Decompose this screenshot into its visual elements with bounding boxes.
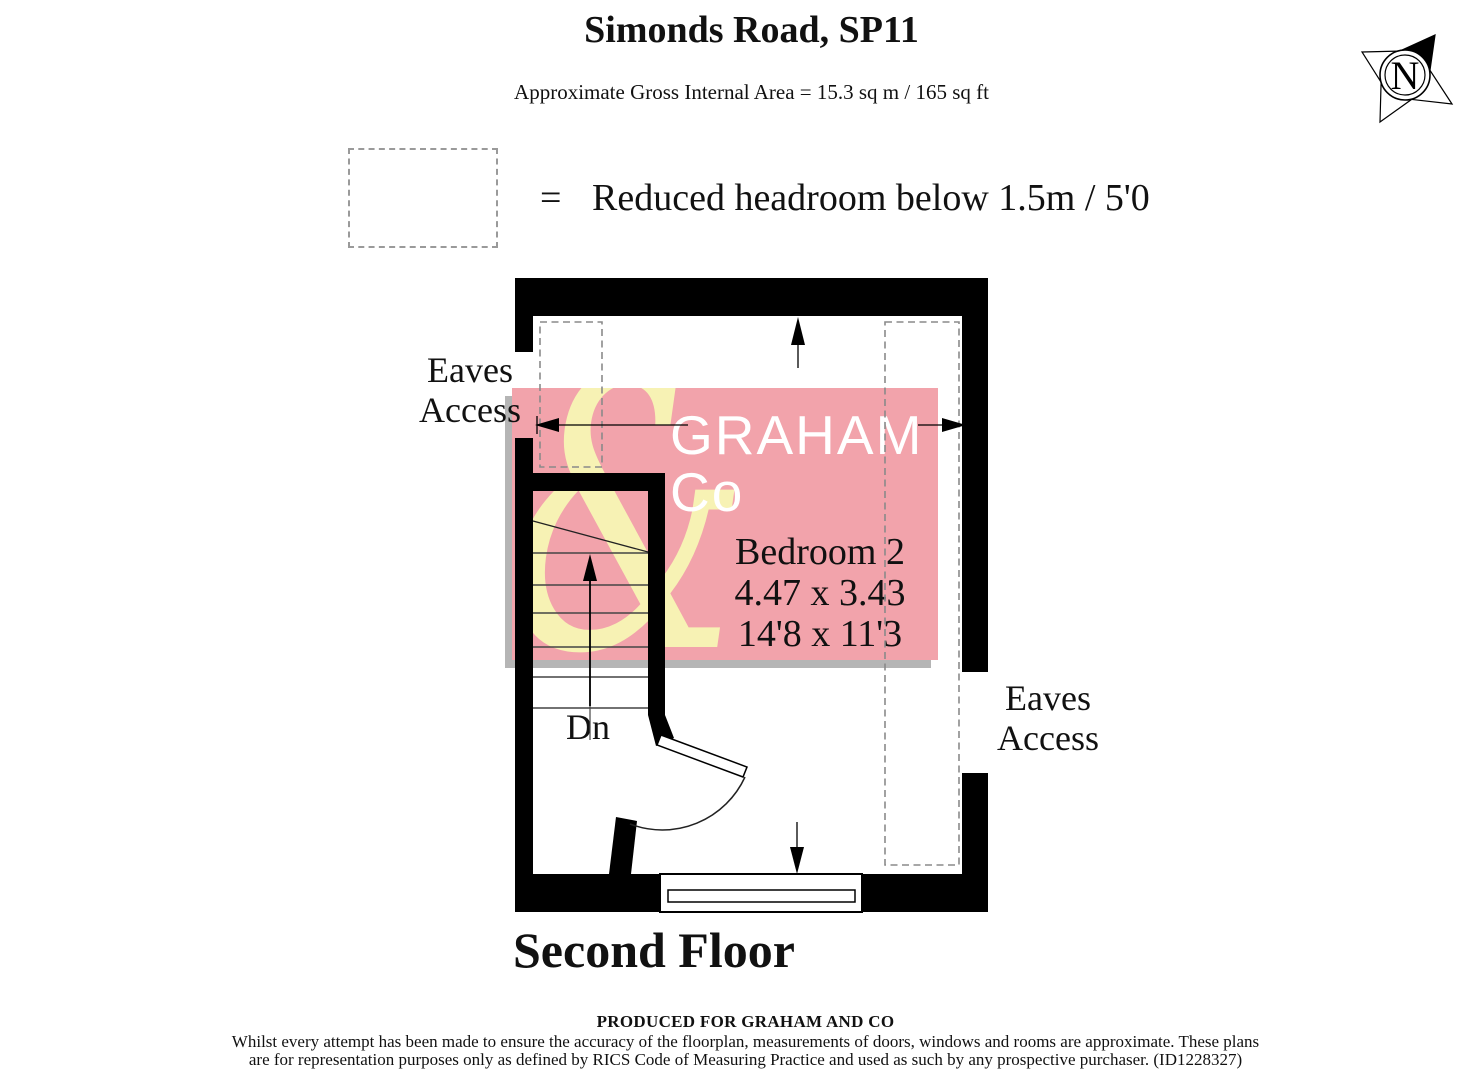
door-swing-arc: [630, 777, 745, 830]
legend-equals: =: [540, 176, 561, 220]
footer-disclaimer-line1: Whilst every attempt has been made to en…: [10, 1033, 1481, 1051]
wall-left-upper: [515, 278, 533, 352]
watermark-co: Co: [670, 465, 744, 520]
page-title: Simonds Road, SP11: [22, 8, 1481, 52]
legend-label: Reduced headroom below 1.5m / 5'0: [592, 176, 1150, 220]
watermark-name: GRAHAM: [670, 408, 923, 463]
floorplan-page: Simonds Road, SP11 Approximate Gross Int…: [0, 0, 1481, 1080]
eaves-access-label-right: Eaves Access: [963, 678, 1133, 758]
room-name: Bedroom 2: [640, 532, 1000, 573]
window-arrow-bottom: [790, 822, 804, 874]
footer-produced-for: PRODUCED FOR GRAHAM AND CO: [10, 1012, 1481, 1032]
compass-north-icon: N: [1348, 18, 1464, 134]
area-subtitle: Approximate Gross Internal Area = 15.3 s…: [22, 80, 1481, 105]
door: [630, 735, 747, 830]
door-leaf: [657, 735, 747, 777]
room-label-bedroom2: Bedroom 2 4.47 x 3.43 14'8 x 11'3: [640, 532, 1000, 655]
room-dimensions-metric: 4.47 x 3.43: [640, 573, 1000, 614]
floor-title: Second Floor: [513, 921, 795, 979]
wall-bottom-right: [862, 874, 988, 912]
stairs-down-label: Dn: [566, 706, 610, 748]
compass-letter: N: [1391, 53, 1420, 98]
footer-disclaimer: Whilst every attempt has been made to en…: [10, 1033, 1481, 1069]
window-bottom: [660, 874, 862, 912]
wall-right-lower: [962, 773, 988, 912]
wall-top: [515, 278, 988, 316]
eaves-access-label-left: Eaves Access: [385, 350, 555, 430]
door-frame-stub: [609, 817, 637, 874]
door-hinge-stub: [648, 715, 674, 746]
room-dimensions-imperial: 14'8 x 11'3: [640, 614, 1000, 655]
compass-star: N: [1362, 35, 1452, 122]
footer-disclaimer-line2: are for representation purposes only as …: [10, 1051, 1481, 1069]
wall-bottom-left: [515, 874, 660, 912]
window-arrow-top: [791, 317, 805, 368]
legend-reduced-headroom-swatch: [348, 148, 498, 248]
